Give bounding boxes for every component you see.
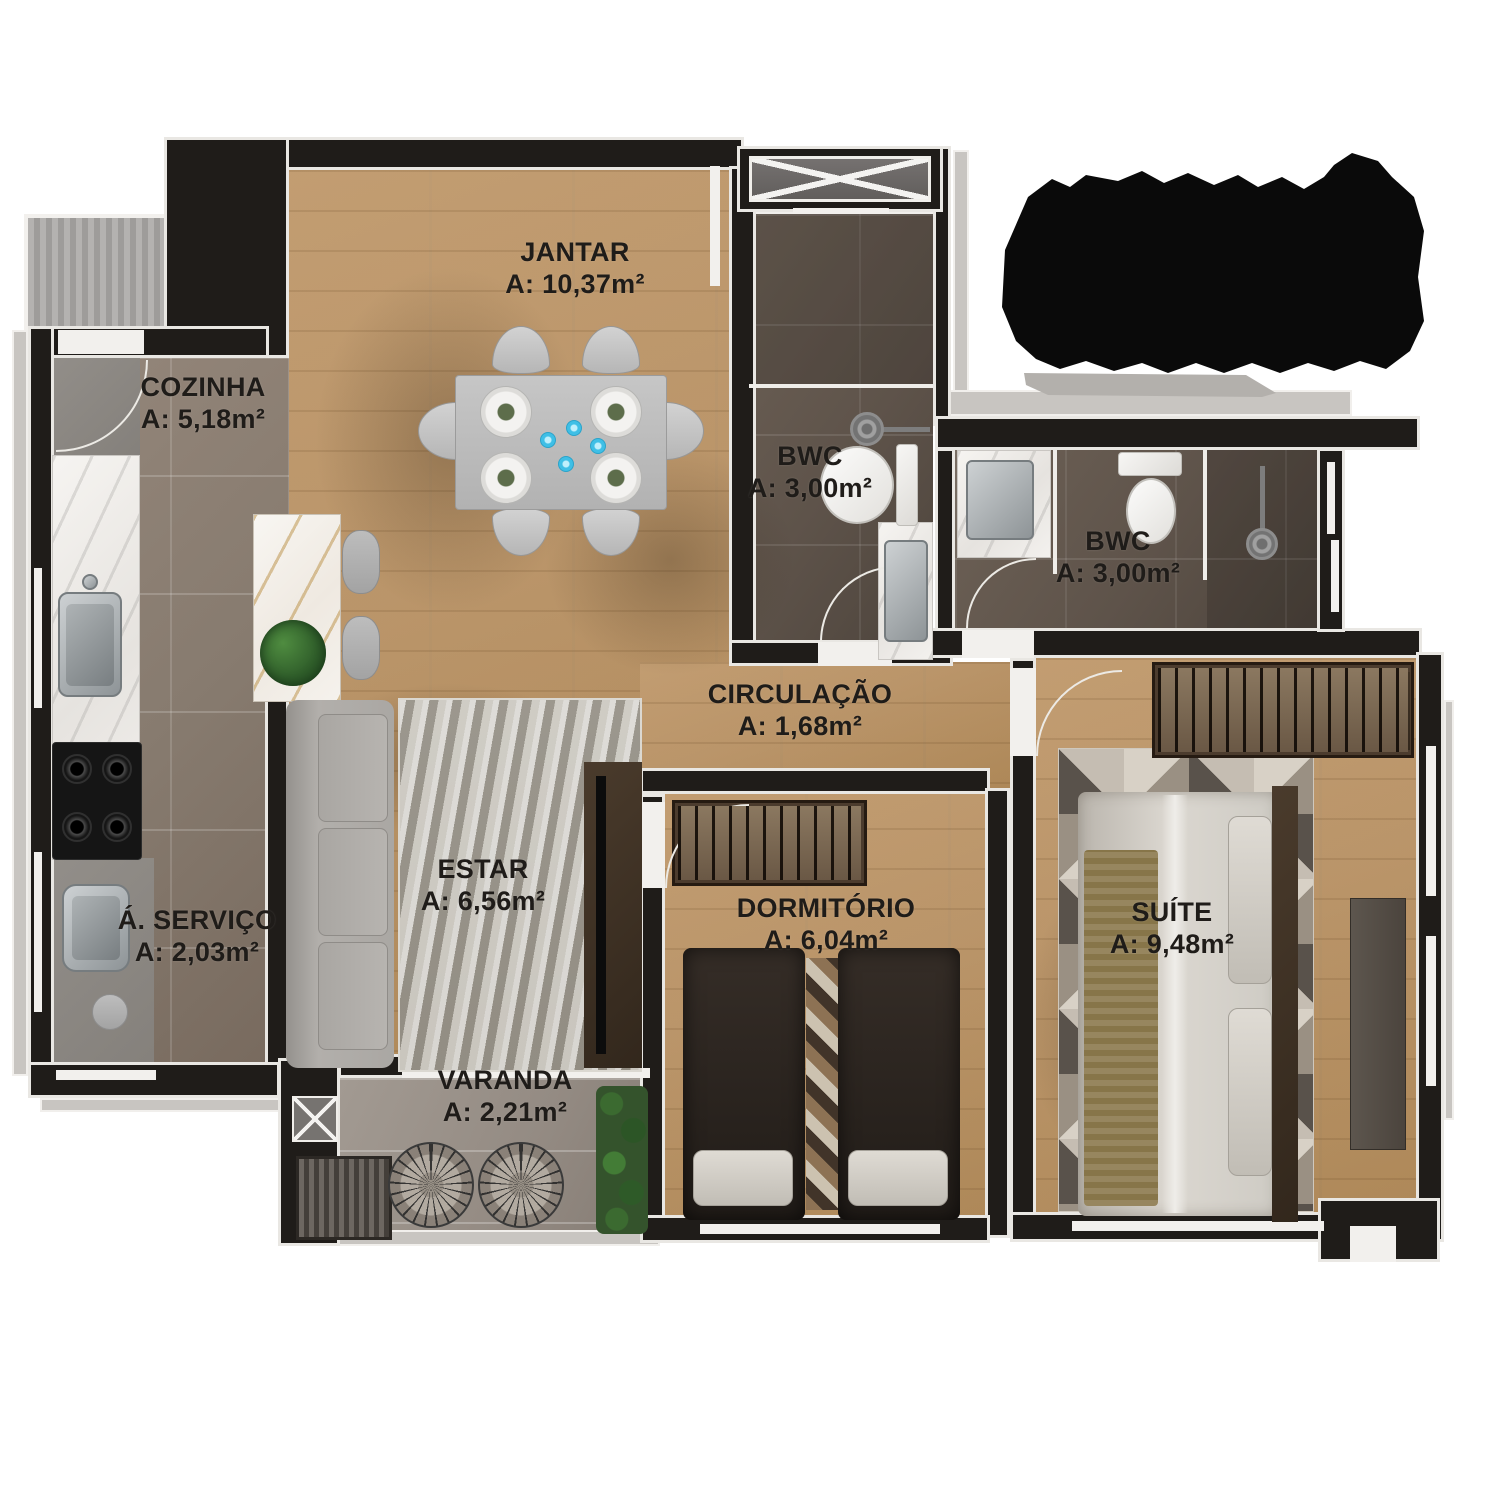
bwc1-toilet-tank bbox=[896, 444, 918, 526]
room-name: SUÍTE bbox=[1110, 896, 1234, 928]
ledge-left bbox=[12, 330, 28, 1076]
burner-2 bbox=[102, 754, 132, 784]
window-suite-east-1 bbox=[1426, 746, 1436, 896]
window-cozinha bbox=[34, 568, 42, 708]
room-area: A: 2,03m² bbox=[118, 936, 277, 968]
door-entry bbox=[58, 330, 144, 354]
dorm-wardrobe-hangers bbox=[678, 806, 861, 880]
room-label-circulacao: CIRCULAÇÃO A: 1,68m² bbox=[708, 678, 893, 742]
cup-4 bbox=[558, 456, 574, 472]
wall-corner-topleft bbox=[164, 137, 289, 358]
room-area: A: 5,18m² bbox=[140, 403, 265, 435]
window-bwc2-east-1 bbox=[1327, 462, 1335, 534]
trim-jantar-east bbox=[710, 166, 720, 286]
room-name: JANTAR bbox=[505, 236, 645, 268]
room-area: A: 10,37m² bbox=[505, 268, 645, 300]
sofa-cushion-2 bbox=[318, 828, 388, 936]
room-label-estar: ESTAR A: 6,56m² bbox=[421, 853, 545, 917]
bwc2-sink bbox=[966, 460, 1034, 540]
island-stool-1 bbox=[342, 530, 380, 594]
dorm-bed-1-pillow bbox=[693, 1150, 793, 1206]
plate-3 bbox=[480, 452, 532, 504]
sofa-cushion-3 bbox=[318, 942, 388, 1050]
room-label-varanda: VARANDA A: 2,21m² bbox=[437, 1064, 572, 1128]
ledge-top-right-vertical bbox=[953, 150, 969, 422]
cup-1 bbox=[540, 432, 556, 448]
kitchen-sink-basin bbox=[66, 604, 114, 686]
wall-dorm-suite bbox=[985, 788, 1010, 1238]
elevator-shaft bbox=[749, 156, 931, 202]
window-servico-bottom bbox=[56, 1070, 156, 1080]
island-stool-2 bbox=[342, 616, 380, 680]
room-area: A: 6,56m² bbox=[421, 885, 545, 917]
window-dorm-bottom bbox=[700, 1224, 940, 1234]
plate-4 bbox=[590, 452, 642, 504]
obscured-text-mass bbox=[1002, 153, 1424, 373]
window-servico bbox=[34, 852, 42, 1012]
dorm-bed-2-pillow bbox=[848, 1150, 948, 1206]
window-bwc2-east-2 bbox=[1331, 540, 1339, 612]
room-area: A: 2,21m² bbox=[437, 1096, 572, 1128]
plate-2 bbox=[590, 386, 642, 438]
burner-3 bbox=[62, 812, 92, 842]
room-area: A: 3,00m² bbox=[1056, 557, 1180, 589]
room-name: BWC bbox=[1056, 525, 1180, 557]
room-label-jantar: JANTAR A: 10,37m² bbox=[505, 236, 645, 300]
room-label-bwc1: BWC A: 3,00m² bbox=[748, 440, 872, 504]
pillar-notch bbox=[1350, 1226, 1396, 1262]
room-name: Á. SERVIÇO bbox=[118, 904, 277, 936]
varanda-plants bbox=[596, 1086, 648, 1234]
island-plant bbox=[260, 620, 326, 686]
bwc1-shower-arm bbox=[882, 427, 930, 432]
room-area: A: 9,48m² bbox=[1110, 928, 1234, 960]
room-name: CIRCULAÇÃO bbox=[708, 678, 893, 710]
wall-dorm-top bbox=[640, 768, 990, 794]
shaft-marker bbox=[292, 1096, 338, 1142]
suite-pillow-1 bbox=[1228, 816, 1272, 984]
burner-1 bbox=[62, 754, 92, 784]
cup-2 bbox=[566, 420, 582, 436]
wall-bwc2-west bbox=[935, 448, 955, 648]
room-name: COZINHA bbox=[140, 371, 265, 403]
suite-pillow-2 bbox=[1228, 1008, 1272, 1176]
plate-1 bbox=[480, 386, 532, 438]
suite-wardrobe-hangers bbox=[1158, 668, 1408, 752]
burner-4 bbox=[102, 812, 132, 842]
cup-3 bbox=[590, 438, 606, 454]
room-label-suite: SUÍTE A: 9,48m² bbox=[1110, 896, 1234, 960]
room-label-bwc2: BWC A: 3,00m² bbox=[1056, 525, 1180, 589]
bwc2-toilet-tank bbox=[1118, 452, 1182, 476]
room-area: A: 1,68m² bbox=[708, 710, 893, 742]
condenser-grill bbox=[296, 1156, 392, 1240]
dorm-rug bbox=[806, 958, 838, 1210]
suite-headboard bbox=[1272, 786, 1298, 1222]
tv bbox=[596, 776, 606, 1054]
kitchen-faucet bbox=[82, 574, 98, 590]
room-label-cozinha: COZINHA A: 5,18m² bbox=[140, 371, 265, 435]
door-dormitorio bbox=[640, 802, 665, 888]
ledge-suite-right bbox=[1444, 700, 1454, 1120]
room-name: DORMITÓRIO bbox=[737, 892, 916, 924]
room-area: A: 6,04m² bbox=[737, 924, 916, 956]
room-area: A: 3,00m² bbox=[748, 472, 872, 504]
suite-bench bbox=[1350, 898, 1406, 1150]
bwc1-shower-zone bbox=[749, 214, 933, 386]
window-suite-bottom bbox=[1072, 1221, 1324, 1231]
bwc2-shower-arm bbox=[1260, 466, 1265, 532]
door-bwc2 bbox=[962, 630, 1034, 658]
wall-servico-bottom bbox=[28, 1062, 280, 1098]
varanda-chair-1 bbox=[388, 1142, 474, 1228]
room-label-dormitorio: DORMITÓRIO A: 6,04m² bbox=[737, 892, 916, 956]
tv-console bbox=[584, 762, 642, 1068]
suite-bed-fold bbox=[1162, 795, 1188, 1213]
bwc1-shower-glass bbox=[749, 384, 933, 388]
varanda-chair-2 bbox=[478, 1142, 564, 1228]
room-name: ESTAR bbox=[421, 853, 545, 885]
wall-bwc1-west bbox=[729, 166, 756, 658]
wall-wing-top bbox=[935, 416, 1420, 450]
bwc2-glass-2 bbox=[1203, 450, 1207, 580]
room-name: BWC bbox=[748, 440, 872, 472]
room-label-servico: Á. SERVIÇO A: 2,03m² bbox=[118, 904, 277, 968]
room-name: VARANDA bbox=[437, 1064, 572, 1096]
obscured-text-shadow bbox=[1024, 373, 1276, 397]
floor-plan-canvas: JANTAR A: 10,37m² COZINHA A: 5,18m² BWC … bbox=[0, 0, 1500, 1500]
ledge-bottom-left bbox=[40, 1098, 280, 1112]
laundry-tank-basin bbox=[72, 896, 120, 960]
towel-roll bbox=[92, 994, 128, 1030]
sofa-cushion-1 bbox=[318, 714, 388, 822]
bwc1-sink bbox=[884, 540, 928, 642]
window-suite-east-2 bbox=[1426, 936, 1436, 1086]
elevator-door bbox=[793, 208, 889, 214]
bwc2-shower-head bbox=[1246, 528, 1278, 560]
door-suite bbox=[1010, 668, 1036, 756]
obscured-title-block bbox=[990, 135, 1450, 415]
